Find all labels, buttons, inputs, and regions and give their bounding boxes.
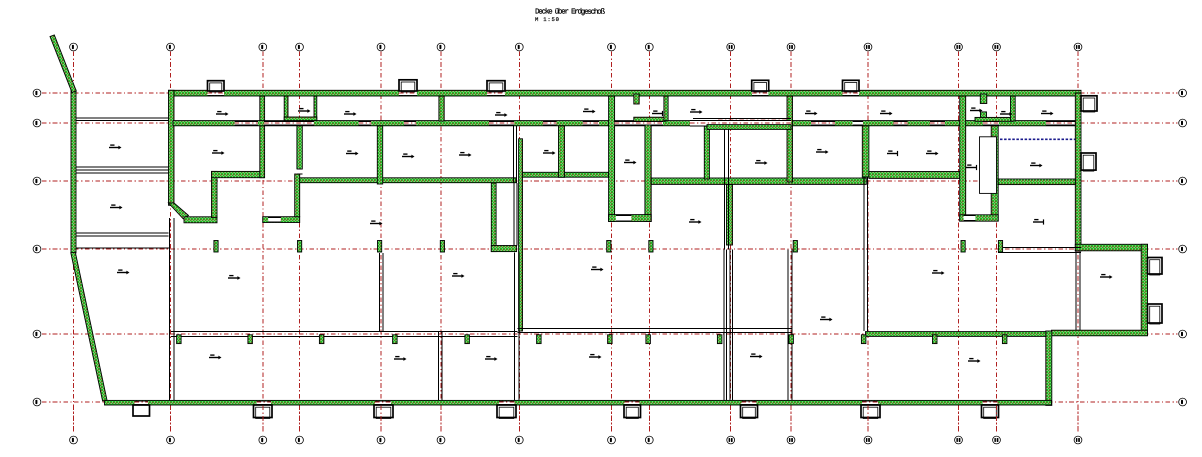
svg-text:M 1:50: M 1:50 xyxy=(535,16,560,23)
